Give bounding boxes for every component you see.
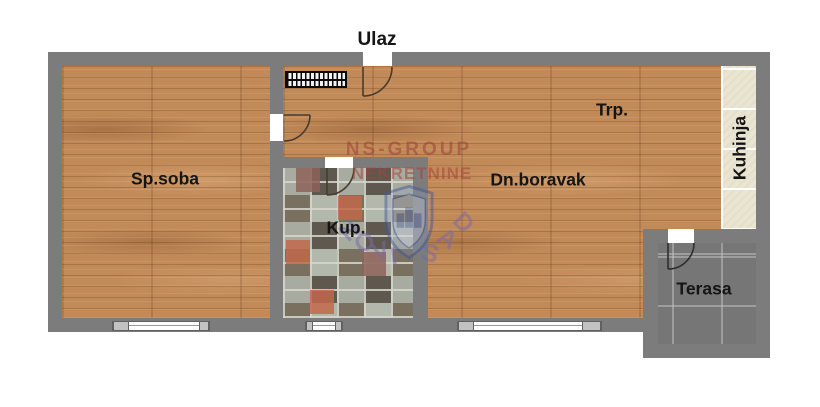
bedroom-label: Sp.soba: [131, 169, 199, 190]
window-end-cap: [458, 322, 474, 330]
bedroom-door-opening: [270, 114, 283, 140]
living-room-label: Dn.boravak: [490, 170, 585, 191]
entrance-door-opening: [363, 52, 392, 66]
bathroom-window: [305, 321, 343, 331]
living-room-window: [457, 321, 602, 331]
floor-plan: NS-GROUP NEKRETNINE N O V I S A D Ulaz S…: [0, 0, 820, 407]
window-end-cap: [582, 322, 601, 330]
window-end-cap: [335, 322, 342, 330]
bathroom-accent-tile: [286, 240, 310, 264]
bedroom-window: [112, 321, 210, 331]
window-end-cap: [199, 322, 209, 330]
watermark-agency-name: NS-GROUP: [346, 139, 472, 161]
window-end-cap: [113, 322, 129, 330]
window-end-cap: [306, 322, 313, 330]
outer-wall-right: [756, 52, 770, 358]
bathroom-wall-top-left: [283, 157, 325, 168]
outer-wall-left: [48, 52, 62, 332]
bathroom-accent-tile: [296, 168, 320, 192]
entrance-label: Ulaz: [357, 29, 396, 51]
outer-wall-top: [48, 52, 770, 66]
bathroom-accent-tile: [338, 196, 362, 220]
terrace-label: Terasa: [676, 279, 731, 300]
bathroom-label: Kup.: [327, 218, 366, 239]
dining-label: Trp.: [596, 100, 628, 121]
bedroom-wall-upper: [270, 66, 283, 115]
terrace-wall-bottom: [643, 344, 770, 358]
watermark-agency-subtitle: NEKRETNINE: [352, 164, 473, 184]
bathroom-accent-tile: [310, 290, 334, 314]
terrace-wall-top-right: [694, 229, 770, 243]
terrace-wall-left: [643, 229, 658, 358]
terrace-door-opening: [668, 229, 694, 243]
wardrobe-hatch-icon: [285, 71, 347, 88]
bedroom-wall-lower: [270, 141, 283, 318]
bedroom-floor: [62, 66, 270, 318]
window-glass-line: [458, 325, 601, 326]
kitchen-label: Kuhinja: [730, 116, 751, 180]
